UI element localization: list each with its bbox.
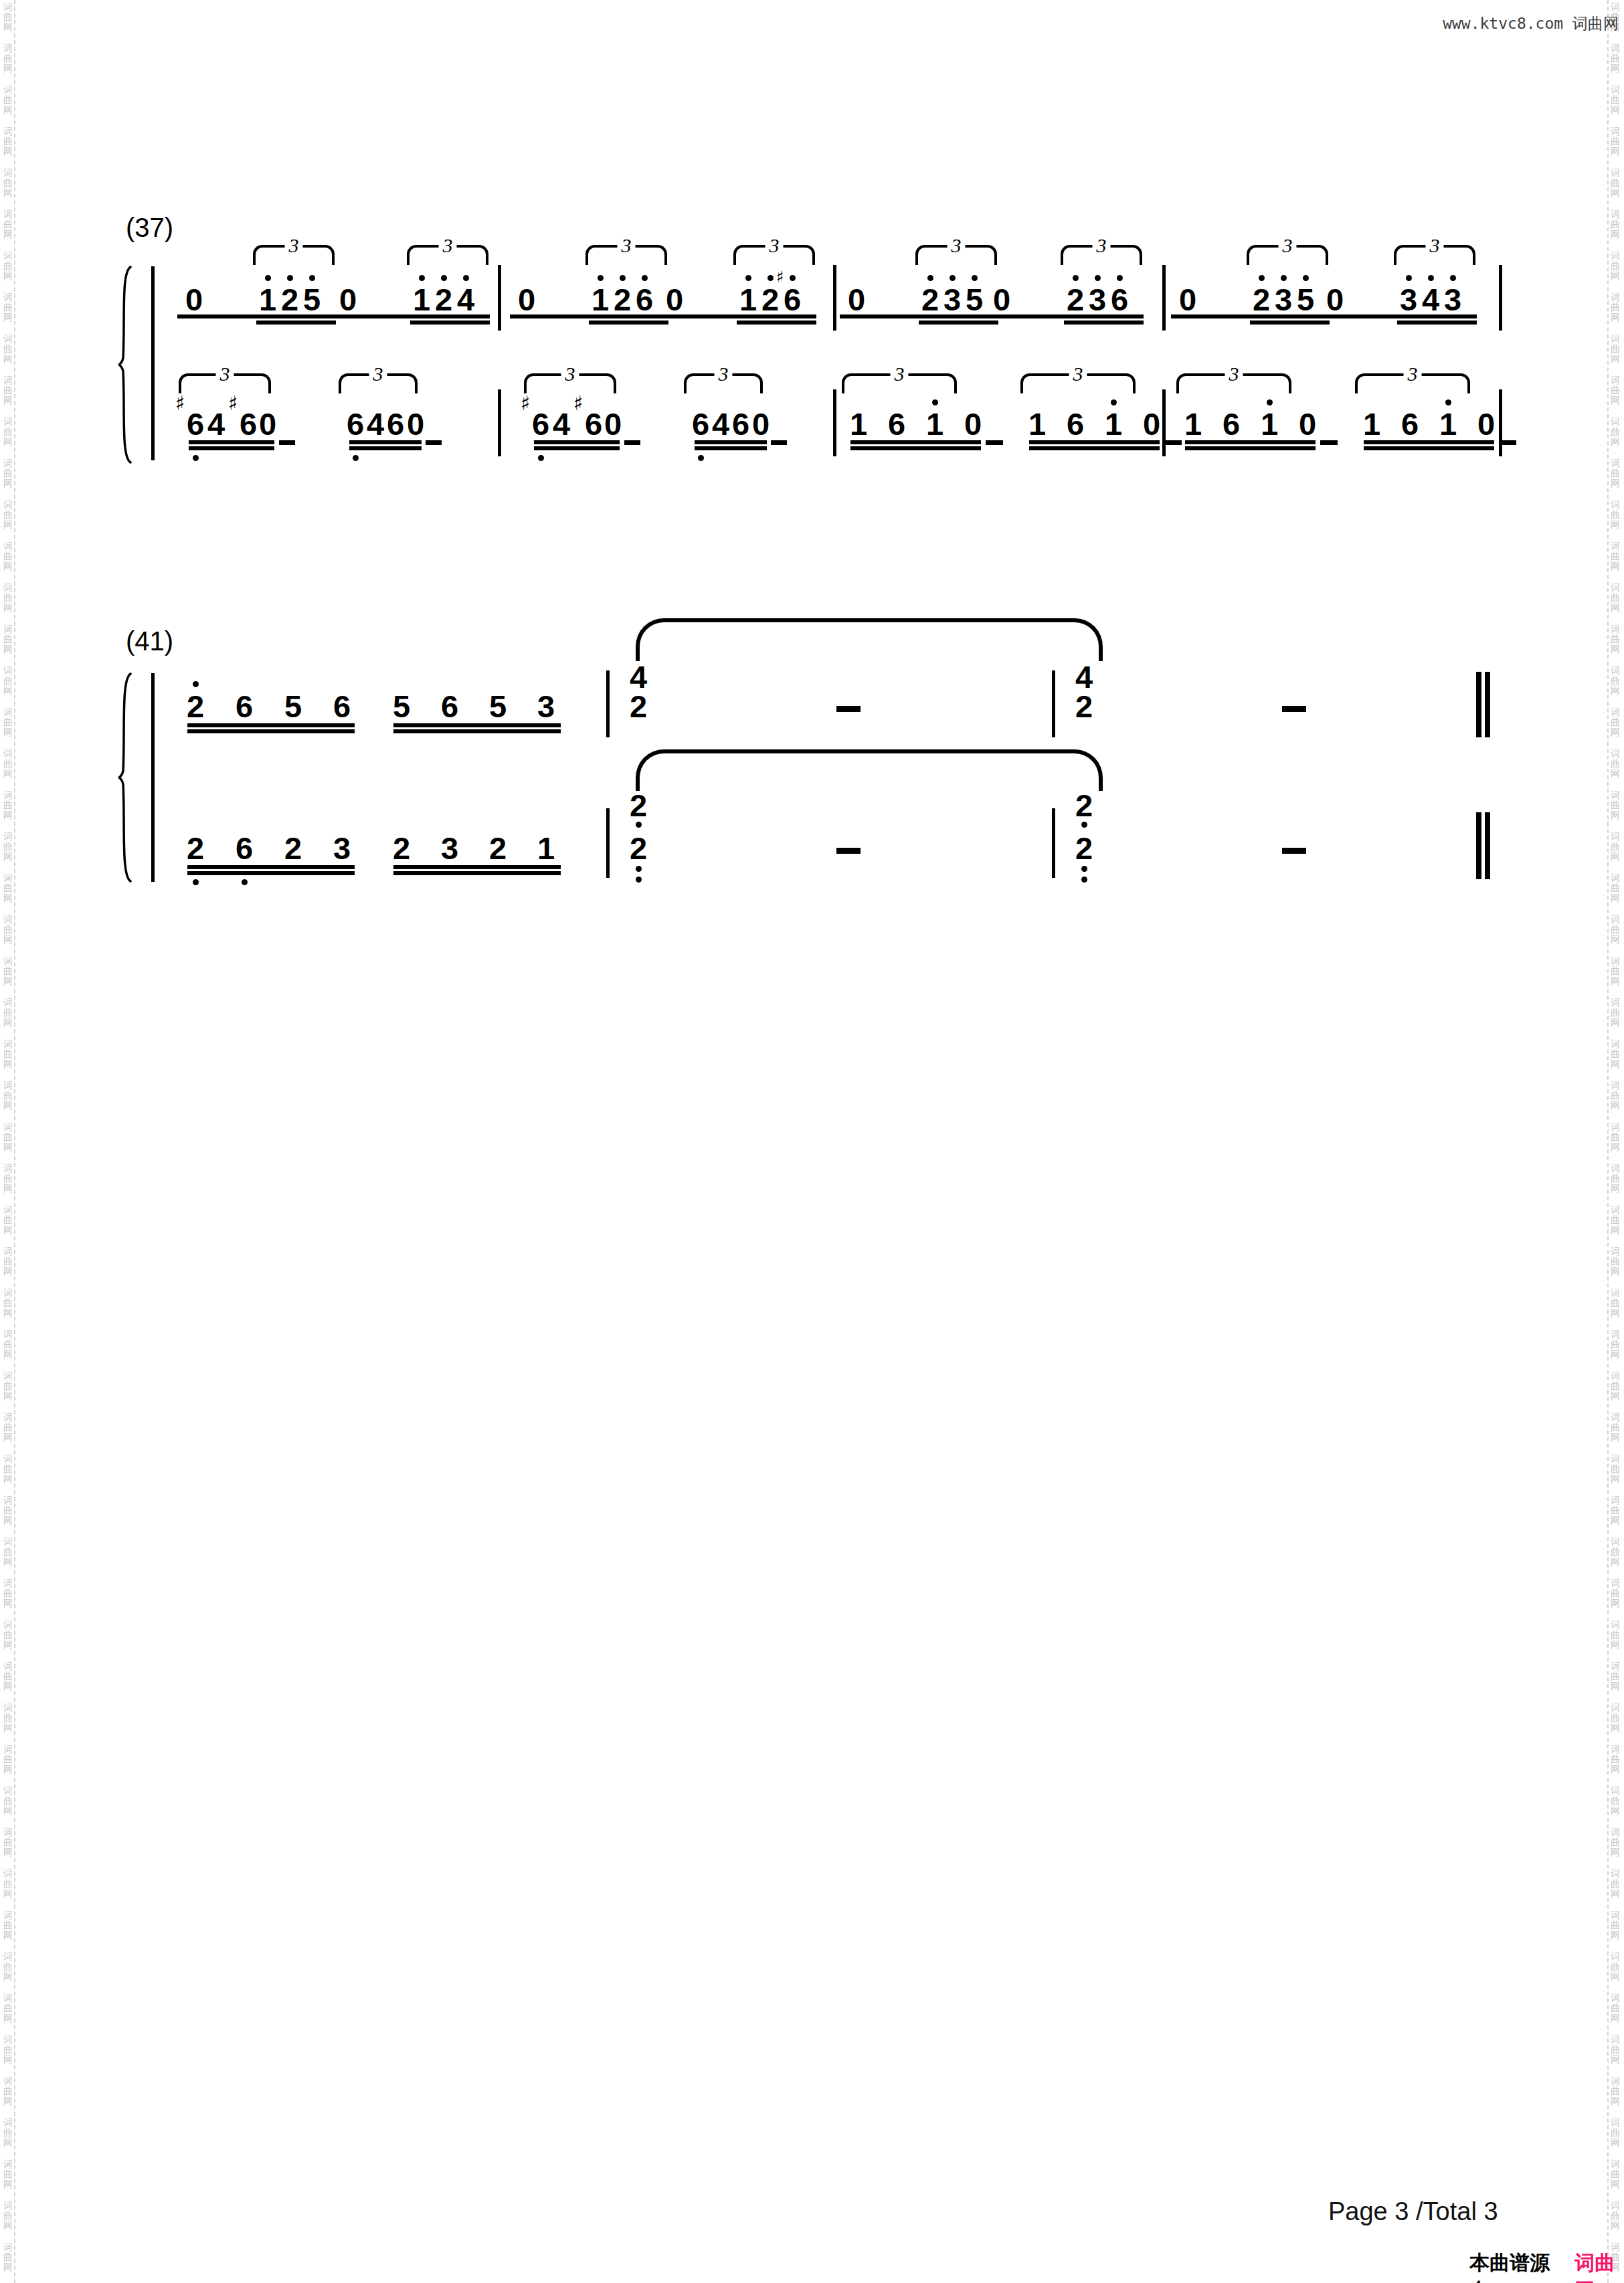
beam-line <box>1185 446 1316 450</box>
beam-line <box>850 446 981 450</box>
sixteenth-underline <box>919 321 998 325</box>
note-digit: 6 <box>384 412 407 436</box>
score: (37)0125301243012630126♯3023530236302353… <box>0 0 1624 2283</box>
octave-dot <box>193 681 199 687</box>
tuplet-bracket: 3 <box>253 245 335 265</box>
octave-dot <box>1428 275 1434 281</box>
note-digit: 6 <box>184 412 207 436</box>
source-site-link[interactable]: 词曲网 <box>1574 2250 1624 2283</box>
note-digit: 4 <box>550 412 573 436</box>
rest-underline <box>771 440 787 445</box>
sharp-accidental: ♯ <box>521 393 531 414</box>
note-digit: 6 <box>1399 412 1421 436</box>
beam-line <box>695 446 767 450</box>
tuplet-bracket: 3 <box>684 373 763 393</box>
rest-zero: 0 <box>1176 288 1199 312</box>
tuplet-bracket: 3 <box>1394 245 1475 265</box>
note-digit: 4 <box>709 412 732 436</box>
rest-underline <box>1164 440 1182 445</box>
note-digit: 2 <box>919 288 941 312</box>
barline <box>498 265 501 331</box>
octave-dot <box>353 455 359 461</box>
tuplet-number: 3 <box>1404 364 1422 384</box>
tuplet-bracket: 3 <box>1176 373 1291 393</box>
sharp-accidental: ♯ <box>776 269 784 285</box>
tuplet-bracket: 3 <box>1061 245 1142 265</box>
note-digit: 4 <box>1073 665 1095 689</box>
note-digit: 1 <box>1258 412 1281 436</box>
octave-dot <box>927 275 933 281</box>
rest-zero: 0 <box>602 412 624 436</box>
tuplet-bracket: 3 <box>179 373 271 393</box>
beam-line <box>1029 440 1160 444</box>
tuplet-number: 3 <box>765 236 784 256</box>
note-digit: 6 <box>438 695 461 719</box>
rest-zero: 0 <box>990 288 1013 312</box>
note-digit: 1 <box>1182 412 1204 436</box>
note-digit: 2 <box>611 288 634 312</box>
tuplet-bracket: 3 <box>585 245 667 265</box>
beam-line <box>1364 440 1494 444</box>
sharp-accidental: ♯ <box>175 393 185 414</box>
octave-dot <box>642 275 648 281</box>
rest-zero: 0 <box>256 412 279 436</box>
system-start-barline <box>151 266 155 460</box>
beam-line <box>349 446 422 450</box>
note-digit: 6 <box>1108 288 1131 312</box>
eighth-underline <box>1318 314 1477 318</box>
tie-arc <box>636 749 1103 791</box>
octave-dot <box>1259 275 1265 281</box>
note-digit: 5 <box>282 695 304 719</box>
note-digit: 2 <box>390 836 413 860</box>
eighth-underline <box>1171 314 1330 318</box>
eighth-underline <box>177 314 336 318</box>
note-digit: 4 <box>1419 288 1442 312</box>
rest-zero: 0 <box>663 288 686 312</box>
octave-dot <box>790 275 796 281</box>
tuplet-number: 3 <box>948 236 966 256</box>
rest-zero: 0 <box>404 412 427 436</box>
sixteenth-underline <box>256 321 336 325</box>
note-digit: 6 <box>344 412 367 436</box>
note-digit: 2 <box>1073 836 1095 860</box>
note-digit: 2 <box>627 794 650 818</box>
note-digit: 2 <box>627 836 650 860</box>
rest-zero: 0 <box>1324 288 1346 312</box>
sixteenth-underline <box>1250 321 1330 325</box>
octave-dot <box>1111 399 1117 405</box>
rest-zero: 0 <box>749 412 772 436</box>
tuplet-number: 3 <box>1093 236 1111 256</box>
octave-dot <box>419 275 425 281</box>
beam-line <box>850 440 981 444</box>
octave-dot <box>1081 866 1087 872</box>
measure-number-label: (37) <box>126 213 173 242</box>
note-digit: 2 <box>627 695 650 719</box>
rest-zero: 0 <box>1140 412 1163 436</box>
note-digit: 6 <box>885 412 908 436</box>
note-digit: 1 <box>589 288 612 312</box>
page-number-info: Page 3 /Total 3 <box>1328 2197 1498 2226</box>
octave-dot <box>768 275 774 281</box>
eighth-underline <box>658 314 816 318</box>
barline <box>498 389 501 456</box>
rest-zero: 0 <box>337 288 359 312</box>
note-digit: 5 <box>486 695 509 719</box>
sixteenth-underline <box>589 321 668 325</box>
rest-underline <box>986 440 1003 445</box>
barline <box>833 265 836 331</box>
octave-dot <box>193 879 199 885</box>
note-digit: 6 <box>529 412 552 436</box>
beam-line <box>534 446 620 450</box>
note-digit: 2 <box>759 288 782 312</box>
note-digit: 3 <box>331 836 353 860</box>
note-digit: 3 <box>535 695 557 719</box>
sharp-accidental: ♯ <box>573 393 583 414</box>
octave-dot <box>287 275 293 281</box>
tuplet-bracket: 3 <box>339 373 418 393</box>
tuplet-number: 3 <box>618 236 636 256</box>
note-digit: 2 <box>278 288 301 312</box>
duration-dash <box>836 706 861 712</box>
tuplet-number: 3 <box>1225 364 1243 384</box>
note-digit: 2 <box>184 836 207 860</box>
sharp-accidental: ♯ <box>228 393 238 414</box>
note-digit: 6 <box>331 695 353 719</box>
beam-line <box>187 723 355 727</box>
octave-dot <box>932 399 938 405</box>
end-double-barline <box>1485 672 1490 737</box>
beam-line <box>534 440 620 444</box>
note-digit: 6 <box>233 695 256 719</box>
rest-underline <box>426 440 442 445</box>
octave-dot <box>620 275 626 281</box>
tuplet-number: 3 <box>891 364 909 384</box>
barline <box>1052 808 1055 878</box>
eighth-underline <box>510 314 668 318</box>
beam-line <box>189 446 274 450</box>
note-digit: 1 <box>1360 412 1383 436</box>
note-digit: 1 <box>256 288 279 312</box>
note-digit: 4 <box>627 665 650 689</box>
barline <box>1499 389 1502 456</box>
rest-underline <box>279 440 295 445</box>
octave-dot <box>1081 877 1087 883</box>
octave-dot <box>1073 275 1079 281</box>
note-digit: 2 <box>282 836 304 860</box>
source-credit-prefix: 本曲谱源自 <box>1469 2250 1552 2283</box>
tuplet-bracket: 3 <box>1247 245 1328 265</box>
system-brace <box>114 672 132 883</box>
beam-line <box>187 865 355 869</box>
note-digit: 2 <box>486 836 509 860</box>
sheet-music-page: 词曲网词曲网词曲网词曲网词曲网词曲网词曲网词曲网词曲网词曲网词曲网词曲网词曲网词… <box>0 0 1624 2283</box>
note-digit: 3 <box>1441 288 1464 312</box>
octave-dot <box>538 455 544 461</box>
octave-dot <box>463 275 469 281</box>
note-digit: 1 <box>847 412 870 436</box>
octave-dot <box>636 866 642 872</box>
note-digit: 2 <box>1073 794 1095 818</box>
note-digit: 5 <box>300 288 323 312</box>
note-digit: 3 <box>1086 288 1109 312</box>
eighth-underline <box>840 314 998 318</box>
barline <box>606 670 610 737</box>
note-digit: 1 <box>923 412 946 436</box>
note-digit: 3 <box>1397 288 1420 312</box>
note-digit: 3 <box>1272 288 1295 312</box>
rest-zero: 0 <box>1296 412 1319 436</box>
beam-line <box>189 440 274 444</box>
note-digit: 6 <box>781 288 804 312</box>
octave-dot <box>1081 822 1087 828</box>
measure-number-label: (41) <box>126 626 173 656</box>
rest-zero: 0 <box>962 412 984 436</box>
eighth-underline <box>985 314 1144 318</box>
tuplet-bracket: 3 <box>1020 373 1136 393</box>
octave-dot <box>1095 275 1101 281</box>
tuplet-number: 3 <box>1069 364 1087 384</box>
note-digit: 2 <box>432 288 455 312</box>
barline <box>1499 265 1502 331</box>
note-digit: 2 <box>184 695 207 719</box>
note-digit: 6 <box>729 412 752 436</box>
tuplet-bracket: 3 <box>733 245 815 265</box>
beam-line <box>1029 446 1160 450</box>
sixteenth-underline <box>737 321 816 325</box>
octave-dot <box>636 822 642 828</box>
rest-zero: 0 <box>845 288 868 312</box>
note-digit: 2 <box>1250 288 1273 312</box>
duration-dash <box>1282 848 1306 854</box>
rest-zero: 0 <box>1475 412 1498 436</box>
octave-dot <box>698 455 704 461</box>
note-digit: 6 <box>689 412 712 436</box>
tuplet-number: 3 <box>439 236 457 256</box>
rest-underline <box>1499 440 1516 445</box>
end-double-barline <box>1485 812 1490 879</box>
note-digit: 5 <box>1294 288 1317 312</box>
eighth-underline <box>331 314 490 318</box>
rest-underline <box>624 440 640 445</box>
barline <box>833 389 836 456</box>
note-digit: 3 <box>941 288 964 312</box>
beam-line <box>1185 440 1316 444</box>
tuplet-number: 3 <box>369 364 387 384</box>
system-start-barline <box>151 673 155 882</box>
note-digit: 6 <box>1220 412 1243 436</box>
octave-dot <box>1406 275 1412 281</box>
tuplet-number: 3 <box>216 364 234 384</box>
beam-line <box>349 440 422 444</box>
note-digit: 1 <box>1026 412 1049 436</box>
tuplet-bracket: 3 <box>1355 373 1470 393</box>
tuplet-bracket: 3 <box>842 373 957 393</box>
beam-line <box>393 729 561 733</box>
note-digit: 1 <box>737 288 759 312</box>
note-digit: 6 <box>633 288 656 312</box>
barline <box>1162 265 1166 331</box>
octave-dot <box>242 879 248 885</box>
sixteenth-underline <box>410 321 490 325</box>
note-digit: 6 <box>233 836 256 860</box>
tuplet-number: 3 <box>1426 236 1444 256</box>
tuplet-number: 3 <box>561 364 579 384</box>
barline <box>606 808 610 878</box>
tuplet-bracket: 3 <box>524 373 616 393</box>
end-double-barline <box>1476 672 1481 737</box>
tuplet-bracket: 3 <box>407 245 488 265</box>
tuplet-number: 3 <box>285 236 303 256</box>
note-digit: 3 <box>438 836 461 860</box>
octave-dot <box>950 275 956 281</box>
octave-dot <box>1450 275 1456 281</box>
rest-underline <box>1320 440 1338 445</box>
tuplet-number: 3 <box>715 364 733 384</box>
tie-arc <box>636 618 1103 661</box>
beam-line <box>393 871 561 875</box>
note-digit: 4 <box>205 412 228 436</box>
note-digit: 1 <box>1437 412 1459 436</box>
beam-line <box>393 865 561 869</box>
octave-dot <box>1303 275 1309 281</box>
note-digit: 4 <box>454 288 477 312</box>
octave-dot <box>441 275 447 281</box>
note-digit: 5 <box>963 288 986 312</box>
rest-zero: 0 <box>515 288 538 312</box>
octave-dot <box>598 275 604 281</box>
tuplet-number: 3 <box>1279 236 1297 256</box>
octave-dot <box>193 455 199 461</box>
sixteenth-underline <box>1397 321 1477 325</box>
octave-dot <box>1281 275 1287 281</box>
octave-dot <box>1117 275 1123 281</box>
octave-dot <box>972 275 978 281</box>
rest-zero: 0 <box>183 288 205 312</box>
note-digit: 2 <box>1073 695 1095 719</box>
note-digit: 2 <box>1064 288 1087 312</box>
octave-dot <box>1267 399 1273 405</box>
source-credit: 本曲谱源自 词曲网 <box>1469 2250 1624 2283</box>
octave-dot <box>309 275 315 281</box>
beam-line <box>187 871 355 875</box>
barline <box>1052 670 1055 737</box>
note-digit: 1 <box>410 288 433 312</box>
note-digit: 4 <box>364 412 387 436</box>
beam-line <box>393 723 561 727</box>
note-digit: 1 <box>535 836 557 860</box>
octave-dot <box>636 877 642 883</box>
duration-dash <box>1282 706 1306 712</box>
note-digit: 6 <box>1064 412 1087 436</box>
duration-dash <box>836 848 861 854</box>
octave-dot <box>1445 399 1451 405</box>
tuplet-bracket: 3 <box>915 245 997 265</box>
note-digit: 5 <box>390 695 413 719</box>
beam-line <box>187 729 355 733</box>
octave-dot <box>265 275 271 281</box>
beam-line <box>1364 446 1494 450</box>
octave-dot <box>745 275 751 281</box>
note-digit: 1 <box>1102 412 1125 436</box>
sixteenth-underline <box>1064 321 1144 325</box>
beam-line <box>695 440 767 444</box>
system-brace <box>114 265 132 464</box>
end-double-barline <box>1476 812 1481 879</box>
